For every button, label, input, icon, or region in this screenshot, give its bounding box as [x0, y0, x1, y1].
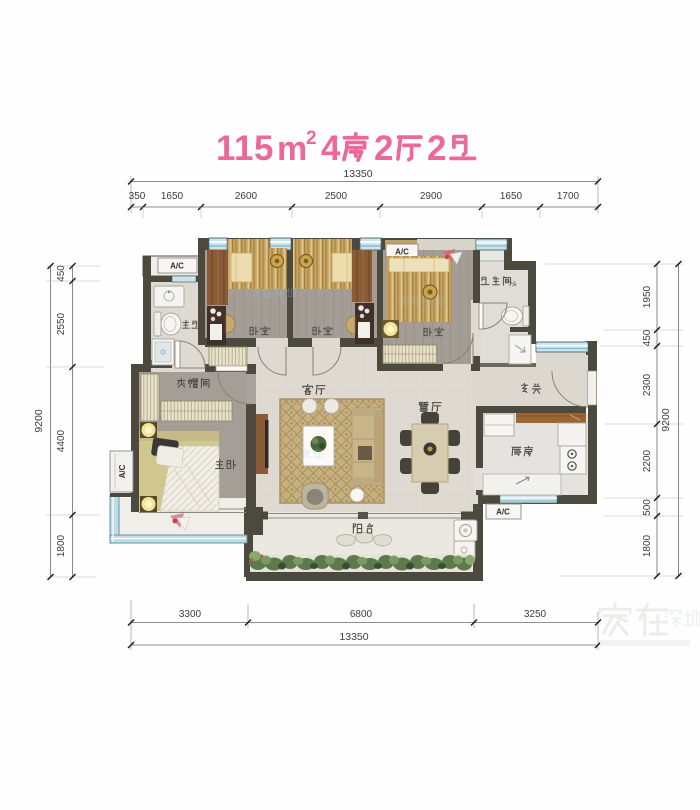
svg-text:2300: 2300 — [642, 373, 653, 396]
svg-text:500: 500 — [642, 499, 653, 516]
svg-text:A/C: A/C — [170, 262, 184, 271]
svg-text:1700: 1700 — [557, 191, 580, 202]
svg-text:13350: 13350 — [339, 631, 368, 643]
svg-text:4: 4 — [321, 129, 341, 168]
svg-text:2200: 2200 — [642, 449, 653, 472]
svg-text:1650: 1650 — [161, 191, 184, 202]
svg-text:3300: 3300 — [179, 609, 202, 620]
svg-text:450: 450 — [642, 329, 653, 346]
svg-text:350: 350 — [129, 191, 146, 202]
svg-text:1950: 1950 — [642, 285, 653, 308]
svg-text:6800: 6800 — [350, 609, 373, 620]
svg-text:2900: 2900 — [420, 191, 443, 202]
svg-text:4400: 4400 — [56, 429, 67, 452]
svg-text:2: 2 — [306, 128, 317, 149]
svg-text:2500: 2500 — [325, 191, 348, 202]
svg-text:m: m — [277, 130, 307, 168]
svg-text:A/C: A/C — [395, 248, 409, 257]
svg-text:A/C: A/C — [496, 508, 510, 517]
svg-text:2600: 2600 — [235, 191, 258, 202]
svg-text:9200: 9200 — [660, 408, 672, 432]
svg-text:2550: 2550 — [56, 312, 67, 335]
svg-text:9200: 9200 — [33, 409, 45, 433]
svg-text:2: 2 — [374, 129, 393, 168]
svg-text:1650: 1650 — [500, 191, 523, 202]
svg-text:13350: 13350 — [343, 168, 372, 180]
svg-text:A/C: A/C — [118, 464, 127, 478]
svg-text:450: 450 — [56, 265, 67, 282]
svg-text:2: 2 — [427, 129, 446, 168]
svg-text:3250: 3250 — [524, 609, 547, 620]
svg-text:1800: 1800 — [56, 534, 67, 557]
svg-text:115: 115 — [216, 129, 274, 168]
svg-text:1800: 1800 — [642, 534, 653, 557]
